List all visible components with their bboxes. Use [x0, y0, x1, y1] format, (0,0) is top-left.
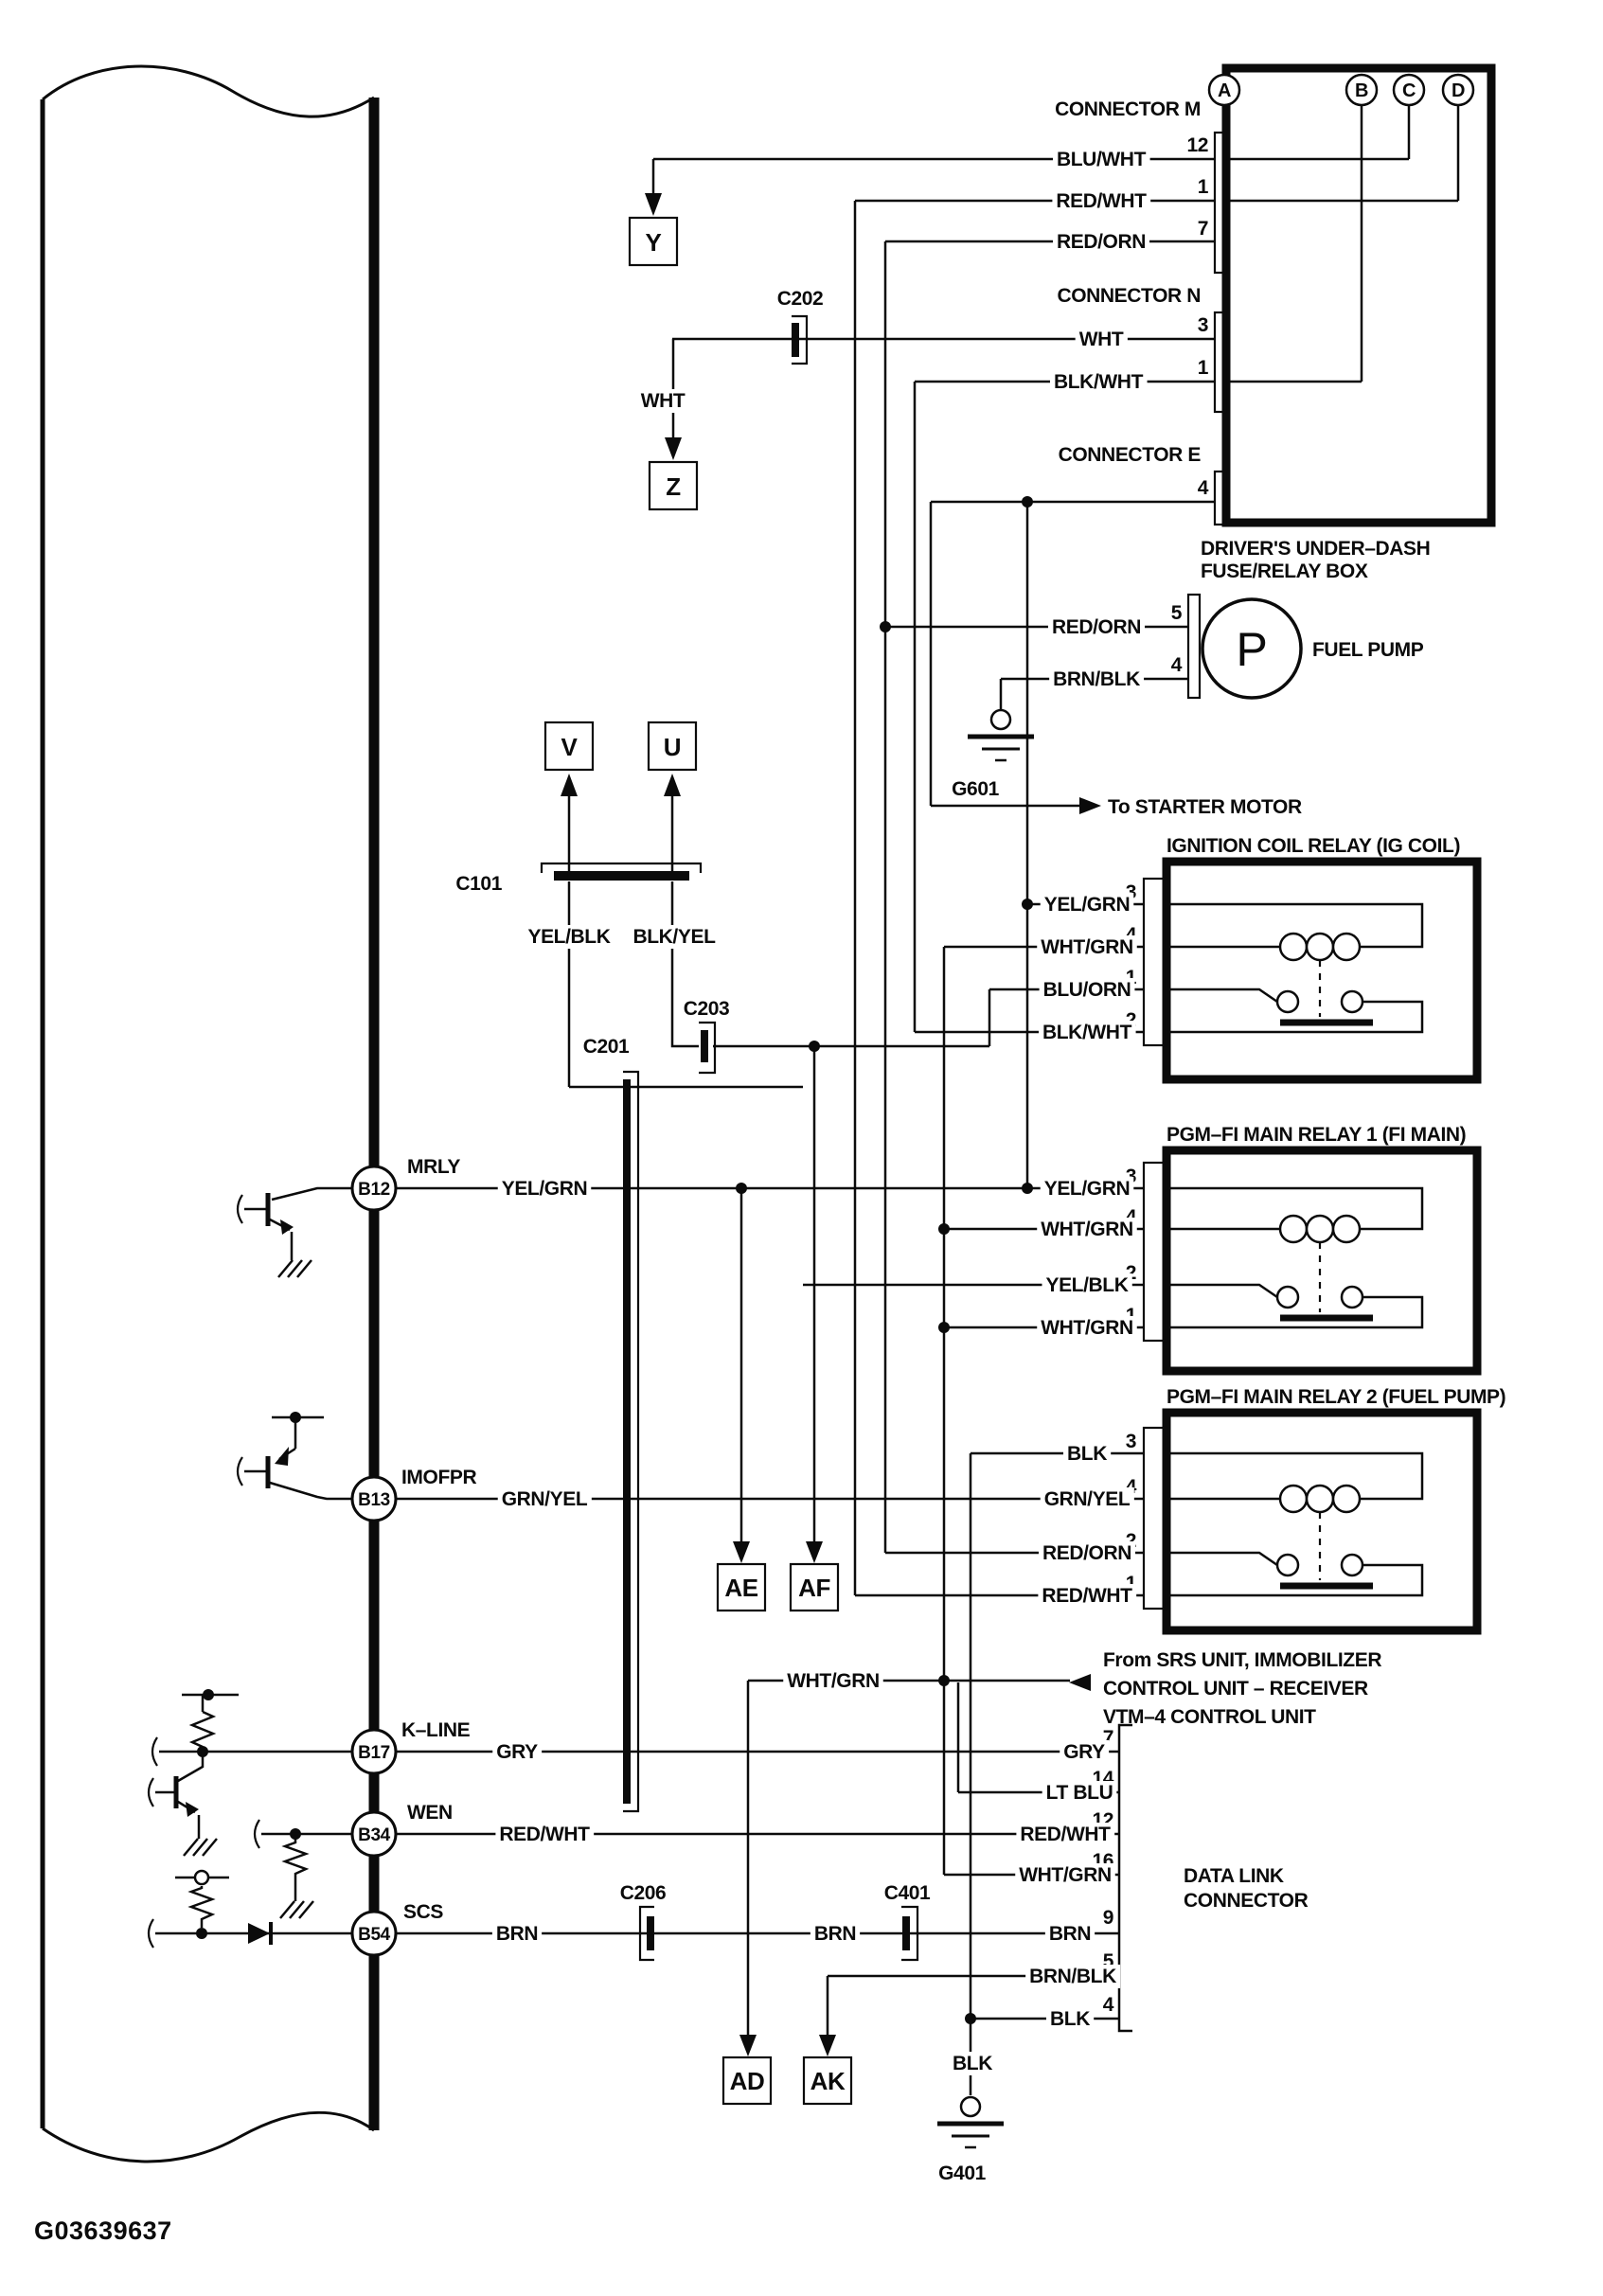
wire-yel-blk: YEL/BLK — [527, 926, 610, 948]
pin-n3: 3 — [1198, 314, 1208, 336]
wire-lines — [196, 106, 1458, 2095]
wire-blk-ground: BLK — [953, 2053, 992, 2074]
pin-m7: 7 — [1198, 218, 1208, 240]
pin-dl4: 4 — [1103, 1994, 1114, 2016]
pin-fp4: 4 — [1171, 654, 1183, 676]
wire-r2-redorn: RED/ORN — [1042, 1542, 1131, 1564]
c201-label: C201 — [583, 1036, 630, 1058]
ground-g401 — [937, 2097, 1004, 2147]
data-link-title-1: DATA LINK — [1184, 1865, 1284, 1887]
wire-blk-wht: BLK/WHT — [1054, 371, 1144, 393]
torn-edge-bottom — [43, 2112, 374, 2162]
wire-r1-yelblk: YEL/BLK — [1045, 1274, 1128, 1296]
page-ref-boxes: Y Z V U AE AF AD AK — [545, 218, 851, 2104]
ecm-block: B12 B13 B17 B34 B54 — [43, 66, 396, 2162]
page-ref-ak: AK — [810, 2067, 846, 2095]
wire-b13: GRN/YEL — [502, 1488, 588, 1510]
ecm-name-mrly: MRLY — [407, 1156, 460, 1178]
ecm-name-imofpr: IMOFPR — [401, 1467, 476, 1488]
c206-label: C206 — [620, 1882, 667, 1904]
c201-bar — [623, 1079, 631, 1804]
page-ref-ad: AD — [730, 2067, 765, 2095]
wire-r0-yelgrn: YEL/GRN — [1044, 894, 1131, 916]
wire-r2-redwht: RED/WHT — [1042, 1585, 1132, 1607]
ground-g601 — [968, 710, 1034, 760]
wire-red-orn: RED/ORN — [1057, 231, 1146, 253]
wire-r2-blk: BLK — [1067, 1443, 1107, 1465]
wire-dl-blk: BLK — [1050, 2008, 1090, 2030]
wire-b17: GRY — [496, 1741, 538, 1763]
wire-r1-whtgrn2: WHT/GRN — [1041, 1317, 1133, 1339]
data-link-title-2: CONNECTOR — [1184, 1890, 1309, 1912]
connector-e-label: CONNECTOR E — [1059, 444, 1202, 466]
c203-label: C203 — [684, 998, 730, 1020]
wire-dl-brn: BRN — [1049, 1923, 1091, 1945]
wire-red-wht: RED/WHT — [1056, 190, 1147, 212]
c203-bar — [701, 1030, 708, 1062]
pin-dl9: 9 — [1103, 1907, 1113, 1929]
wire-dl-ltblu: LT BLU — [1046, 1782, 1113, 1804]
ecm-internal-circuits — [149, 1188, 352, 1948]
wire-r0-blkwht: BLK/WHT — [1042, 1022, 1132, 1043]
wire-r0-whtgrn: WHT/GRN — [1041, 936, 1133, 958]
wire-r0-bluorn: BLU/ORN — [1043, 979, 1131, 1001]
wire-dl-gry: GRY — [1063, 1741, 1105, 1763]
inline-connector-symbols — [542, 316, 917, 1960]
ground-icon — [278, 1260, 312, 1277]
torn-edge-top — [43, 66, 374, 116]
page-ref-ae: AE — [724, 1574, 757, 1602]
ecm-pin-b54: B54 — [358, 1925, 390, 1945]
fuel-pump-letter: P — [1237, 623, 1268, 676]
wire-blk-yel: BLK/YEL — [632, 926, 716, 948]
ref-circle-c: C — [1402, 80, 1416, 101]
ecm-pin-b13: B13 — [358, 1490, 390, 1510]
wire-r2-grnyel: GRN/YEL — [1044, 1488, 1131, 1510]
relay-title-ign: IGNITION COIL RELAY (IG COIL) — [1167, 835, 1460, 857]
pin-e4: 4 — [1198, 477, 1209, 499]
ignition-coil-relay — [1144, 862, 1477, 1079]
page-ref-v: V — [561, 733, 579, 761]
ref-circle-b: B — [1355, 80, 1368, 101]
figure-id: G03639637 — [34, 2216, 172, 2245]
wire-brn-mid: BRN — [814, 1923, 856, 1945]
flow-arrow-icons — [561, 193, 1101, 2056]
c101-bar — [554, 871, 689, 881]
relay-title-main1: PGM–FI MAIN RELAY 1 (FI MAIN) — [1167, 1124, 1466, 1146]
fuel-pump-label: FUEL PUMP — [1312, 639, 1424, 661]
ref-circle-d: D — [1452, 80, 1465, 101]
wire-dl-whtgrn: WHT/GRN — [1019, 1864, 1112, 1886]
ecm-pin-b12: B12 — [358, 1180, 390, 1200]
pgm-fi-main-relay-1 — [1144, 1150, 1477, 1371]
fuse-box-title-1: DRIVER'S UNDER–DASH — [1201, 538, 1430, 560]
pgm-fi-main-relay-2 — [1144, 1413, 1477, 1630]
wire-brn-blk-fp: BRN/BLK — [1053, 668, 1140, 690]
ground-g401-label: G401 — [938, 2163, 986, 2184]
fuel-pump: P — [1188, 595, 1301, 698]
junction-dots — [196, 496, 1033, 2024]
page-ref-y: Y — [646, 228, 662, 257]
fuel-pump-bracket — [1188, 595, 1200, 698]
pin-m12: 12 — [1186, 134, 1208, 156]
wire-b34: RED/WHT — [499, 1824, 590, 1845]
wire-r1-yelgrn: YEL/GRN — [1044, 1178, 1131, 1200]
data-link-connector — [1119, 1725, 1132, 2031]
pin-m1: 1 — [1198, 176, 1209, 198]
ecm-pin-b34: B34 — [358, 1825, 390, 1845]
connector-n-label: CONNECTOR N — [1057, 285, 1201, 307]
srs-note-3: VTM–4 CONTROL UNIT — [1103, 1706, 1316, 1728]
pin-n1: 1 — [1198, 357, 1209, 379]
wire-wht: WHT — [1079, 329, 1124, 350]
srs-note-2: CONTROL UNIT – RECEIVER — [1103, 1678, 1368, 1700]
fuse-relay-box: A B C D — [1209, 68, 1491, 525]
wire-dl-brnblk: BRN/BLK — [1029, 1966, 1116, 1987]
ecm-pin-b17: B17 — [358, 1743, 390, 1763]
wire-b12: YEL/GRN — [502, 1178, 588, 1200]
c401-bar — [902, 1916, 910, 1950]
ground-icon — [280, 1901, 313, 1918]
wire-wht-grn-mid: WHT/GRN — [787, 1670, 880, 1692]
wire-wht-z: WHT — [641, 390, 686, 412]
wiring-diagram-page: B12 B13 B17 B34 B54 A B C D P — [0, 0, 1603, 2296]
wire-r1-whtgrn: WHT/GRN — [1041, 1219, 1133, 1240]
starter-note: To STARTER MOTOR — [1108, 796, 1302, 818]
page-ref-u: U — [664, 733, 681, 761]
wire-red-orn-fp: RED/ORN — [1052, 616, 1141, 638]
wire-dl-redwht: RED/WHT — [1020, 1824, 1111, 1845]
c401-label: C401 — [884, 1882, 931, 1904]
ref-circle-a: A — [1218, 80, 1231, 101]
ground-g601-label: G601 — [952, 778, 999, 800]
ecm-name-scs: SCS — [403, 1901, 443, 1923]
relay-title-main2: PGM–FI MAIN RELAY 2 (FUEL PUMP) — [1167, 1386, 1505, 1408]
page-ref-z: Z — [666, 472, 681, 501]
ecm-name-kline: K–LINE — [401, 1719, 471, 1741]
pin-fp5: 5 — [1171, 602, 1183, 624]
page-ref-af: AF — [798, 1574, 830, 1602]
ecm-name-wen: WEN — [407, 1802, 453, 1824]
fuse-box-title-2: FUSE/RELAY BOX — [1201, 561, 1368, 582]
wire-blu-wht: BLU/WHT — [1057, 149, 1147, 170]
labels: CONNECTOR M CONNECTOR N CONNECTOR E 12 1… — [34, 98, 1505, 2245]
c206-bar — [647, 1916, 654, 1950]
c202-label: C202 — [777, 288, 824, 310]
srs-note-1: From SRS UNIT, IMMOBILIZER — [1103, 1649, 1381, 1671]
c101-label: C101 — [455, 873, 502, 895]
diode-icon — [248, 1923, 270, 1944]
c202-bar — [792, 323, 799, 357]
pin-r2-3: 3 — [1126, 1431, 1136, 1452]
wire-b54: BRN — [496, 1923, 538, 1945]
connector-m-label: CONNECTOR M — [1055, 98, 1201, 120]
wiring-diagram: B12 B13 B17 B34 B54 A B C D P — [0, 0, 1603, 2296]
ground-icon — [184, 1839, 217, 1856]
